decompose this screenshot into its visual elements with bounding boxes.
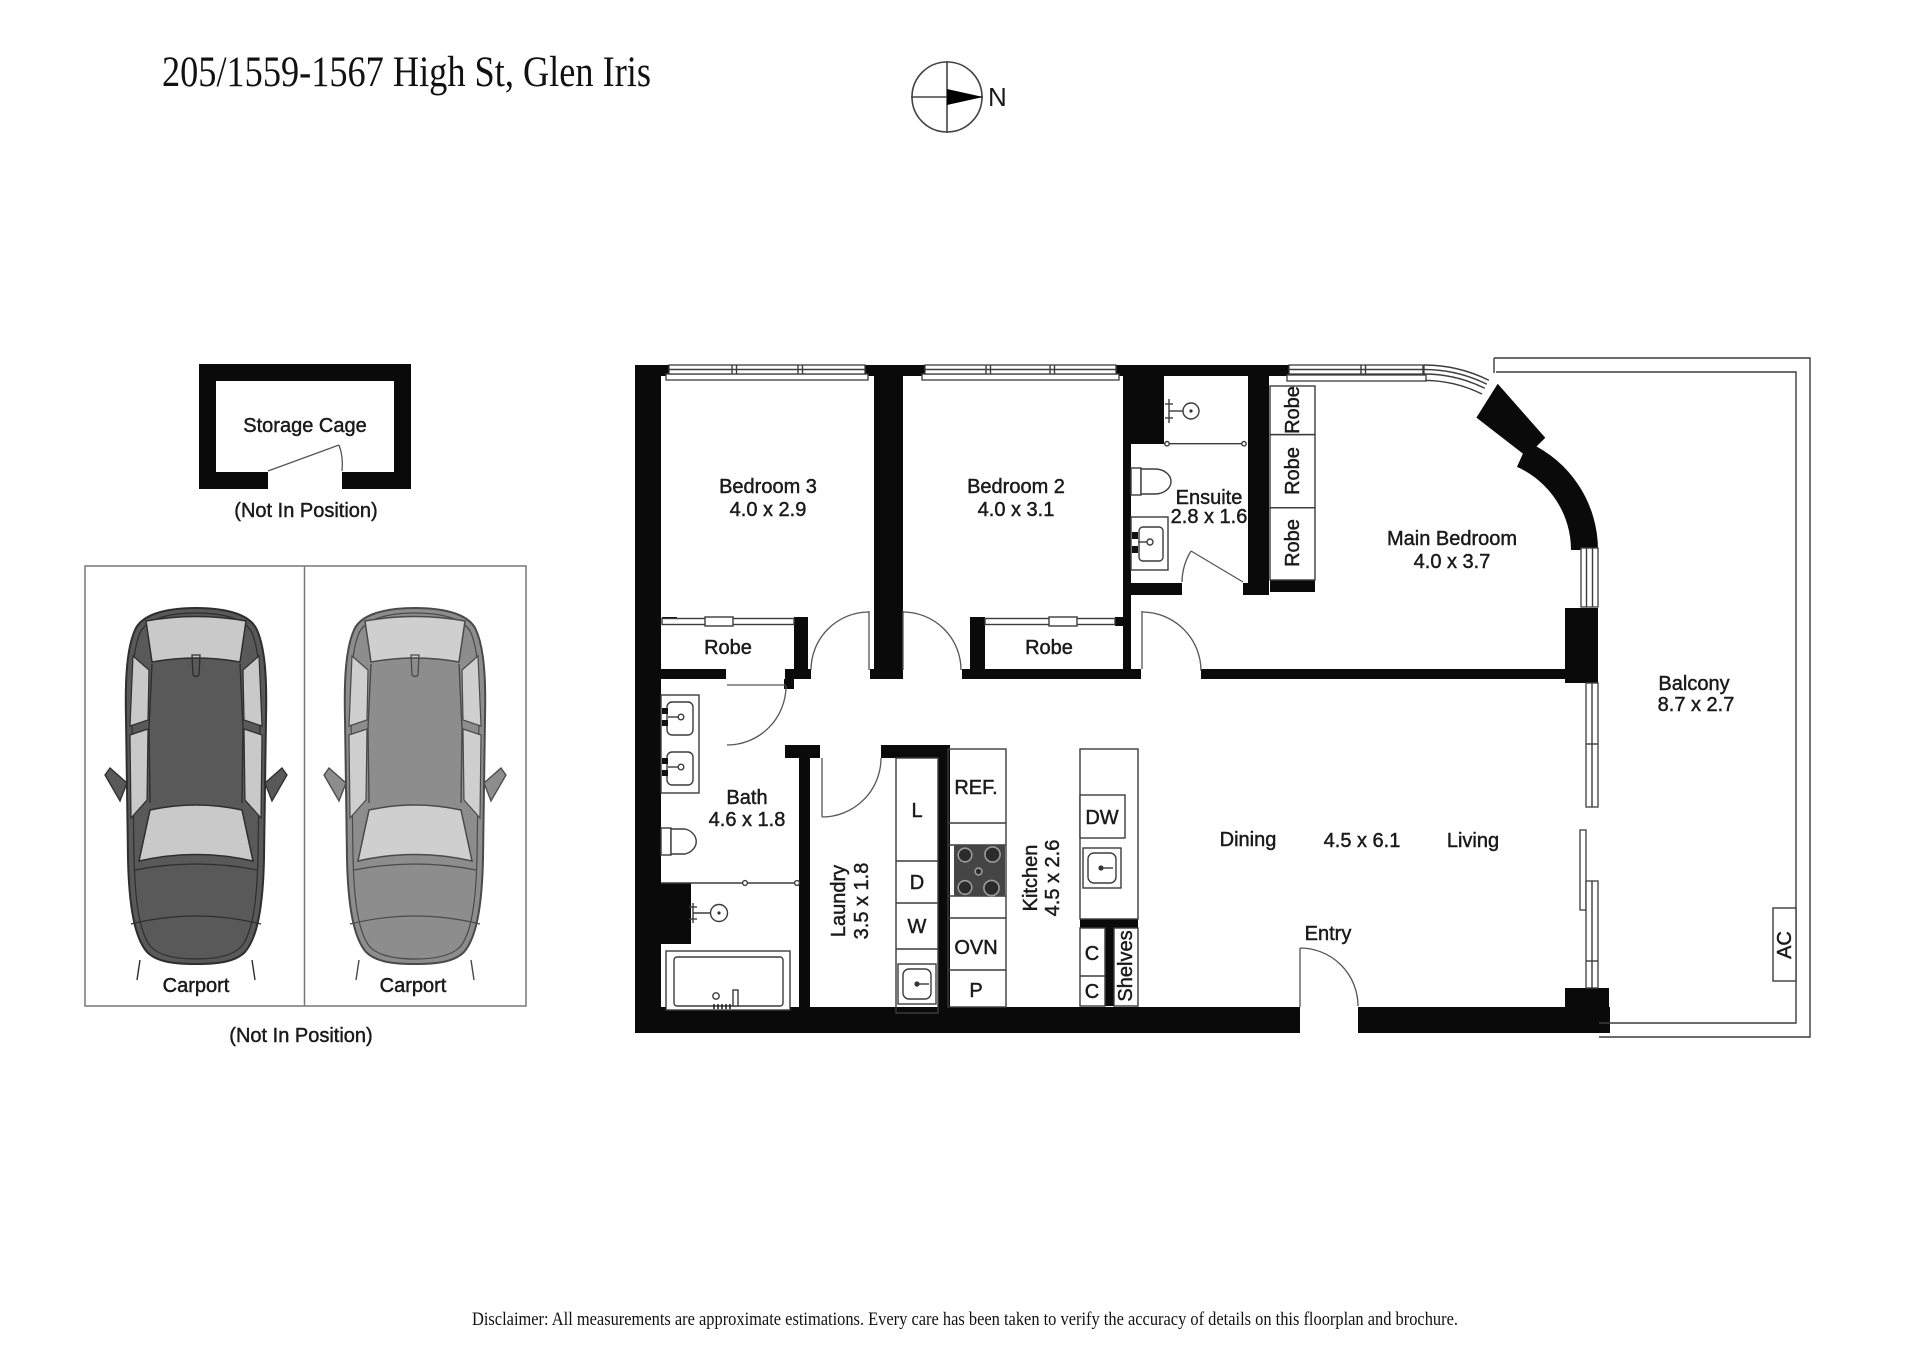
svg-text:Carport: Carport bbox=[380, 975, 447, 997]
svg-text:C: C bbox=[1085, 943, 1099, 965]
svg-text:8.7 x 2.7: 8.7 x 2.7 bbox=[1658, 694, 1735, 716]
svg-text:DW: DW bbox=[1085, 807, 1118, 829]
svg-text:Storage Cage: Storage Cage bbox=[243, 415, 366, 437]
svg-text:4.5 x 6.1: 4.5 x 6.1 bbox=[1324, 830, 1401, 852]
svg-text:N: N bbox=[988, 82, 1007, 112]
svg-text:Shelves: Shelves bbox=[1115, 930, 1137, 1001]
svg-text:W: W bbox=[908, 916, 927, 938]
svg-text:Robe: Robe bbox=[704, 637, 752, 659]
svg-text:REF.: REF. bbox=[954, 777, 997, 799]
svg-text:Main Bedroom: Main Bedroom bbox=[1387, 528, 1517, 550]
svg-text:Robe: Robe bbox=[1282, 519, 1304, 567]
svg-text:Kitchen: Kitchen bbox=[1020, 845, 1042, 912]
svg-text:AC: AC bbox=[1774, 931, 1796, 959]
svg-text:Disclaimer: All measurements a: Disclaimer: All measurements are approxi… bbox=[472, 1309, 1458, 1330]
svg-text:Robe: Robe bbox=[1025, 637, 1073, 659]
svg-text:Dining: Dining bbox=[1220, 829, 1277, 851]
svg-text:205/1559-1567 High St, Glen Ir: 205/1559-1567 High St, Glen Iris bbox=[162, 49, 651, 96]
svg-text:4.6 x 1.8: 4.6 x 1.8 bbox=[709, 809, 786, 831]
svg-text:Robe: Robe bbox=[1282, 447, 1304, 495]
svg-text:4.5 x 2.6: 4.5 x 2.6 bbox=[1042, 840, 1064, 917]
svg-text:P: P bbox=[969, 980, 982, 1002]
svg-text:Bedroom 3: Bedroom 3 bbox=[719, 476, 817, 498]
svg-text:C: C bbox=[1085, 981, 1099, 1003]
svg-text:D: D bbox=[910, 872, 924, 894]
svg-text:(Not In Position): (Not In Position) bbox=[229, 1025, 372, 1047]
svg-text:Bath: Bath bbox=[726, 787, 767, 809]
svg-text:L: L bbox=[911, 800, 922, 822]
svg-text:Robe: Robe bbox=[1282, 386, 1304, 434]
svg-text:Living: Living bbox=[1447, 830, 1499, 852]
svg-text:4.0 x 3.1: 4.0 x 3.1 bbox=[978, 499, 1055, 521]
svg-text:Laundry: Laundry bbox=[828, 865, 850, 937]
svg-text:OVN: OVN bbox=[954, 937, 997, 959]
svg-text:2.8 x 1.6: 2.8 x 1.6 bbox=[1171, 506, 1248, 528]
svg-text:(Not In Position): (Not In Position) bbox=[234, 500, 377, 522]
svg-text:4.0 x 2.9: 4.0 x 2.9 bbox=[730, 499, 807, 521]
svg-text:Balcony: Balcony bbox=[1658, 673, 1729, 695]
svg-text:Bedroom 2: Bedroom 2 bbox=[967, 476, 1065, 498]
svg-text:4.0 x 3.7: 4.0 x 3.7 bbox=[1414, 551, 1491, 573]
svg-text:3.5 x 1.8: 3.5 x 1.8 bbox=[851, 863, 873, 940]
svg-text:Entry: Entry bbox=[1305, 923, 1352, 945]
svg-text:Carport: Carport bbox=[163, 975, 230, 997]
